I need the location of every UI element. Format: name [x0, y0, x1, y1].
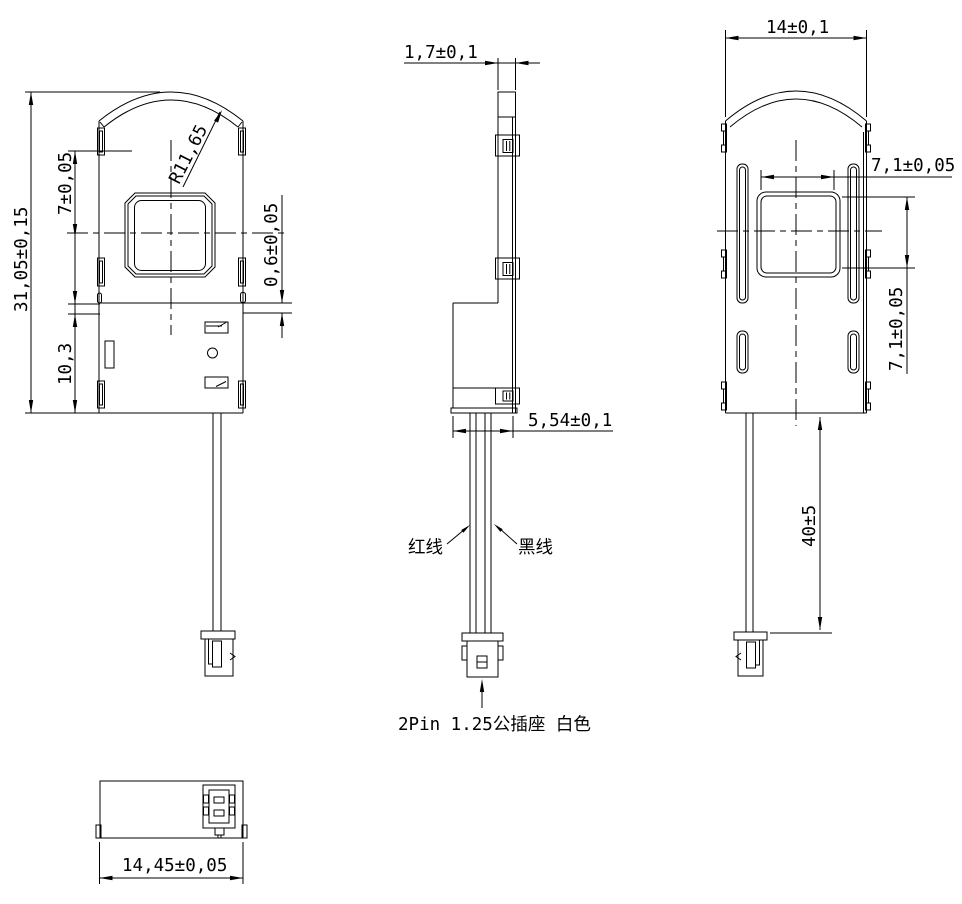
front-wire	[213, 413, 221, 631]
dim-window-height-text: 7,1±0,05	[887, 287, 907, 371]
dim-base-depth-text: 5,54±0,1	[528, 411, 612, 431]
label-connector-text: 2Pin 1.25公插座 白色	[398, 715, 591, 735]
side-connector	[462, 633, 503, 677]
dim-overall-height: 31,05±0,15	[12, 92, 160, 413]
label-black-wire: 黑线	[494, 524, 553, 558]
dim-window-width: 7,1±0,05	[761, 156, 955, 190]
dim-shell-thickness-text: 1,7±0,1	[404, 43, 478, 63]
dim-window-center-text: 7±0,05	[56, 152, 76, 215]
dim-top-radius: R11,65	[166, 110, 222, 187]
dim-shell-thickness: 1,7±0,1	[404, 43, 540, 90]
technical-drawing: 31,05±0,15 7±0,05 10,3 0,6±0,05	[0, 0, 962, 904]
front-view: 31,05±0,15 7±0,05 10,3 0,6±0,05	[12, 92, 292, 676]
dim-overall-width: 14±0,1	[726, 18, 867, 117]
dim-overall-height-text: 31,05±0,15	[12, 207, 32, 312]
side-view: 1,7±0,1 5,54±0,1 红线 黑线 2Pin 1.25公插座 白色	[398, 43, 613, 735]
rear-window	[757, 192, 840, 277]
rear-connector	[734, 632, 767, 676]
side-outline	[451, 92, 517, 413]
rear-centerlines	[717, 140, 882, 426]
drawing-sheet: 31,05±0,15 7±0,05 10,3 0,6±0,05	[0, 0, 962, 904]
rear-slots	[737, 164, 859, 373]
dim-wire-length: 40±5	[770, 417, 832, 633]
dim-bottom-width-text: 14,45±0,05	[122, 856, 227, 876]
dim-overall-width-text: 14±0,1	[766, 18, 829, 38]
dim-lip-step: 0,6±0,05	[262, 195, 284, 338]
dim-bottom-width: 14,45±0,05	[100, 842, 244, 884]
front-connector	[201, 631, 235, 676]
dim-lip-step-text: 0,6±0,05	[262, 203, 282, 287]
bottom-connector	[203, 785, 235, 838]
front-lower-details	[105, 322, 228, 388]
rear-wire	[746, 413, 753, 632]
label-red-wire: 红线	[408, 525, 470, 558]
bottom-view: 14,45±0,05	[96, 781, 247, 884]
dim-top-radius-text: R11,65	[166, 122, 213, 187]
dim-window-width-text: 7,1±0,05	[871, 156, 955, 176]
dim-wire-length-text: 40±5	[800, 505, 820, 547]
label-black-wire-text: 黑线	[518, 538, 553, 558]
front-window	[125, 193, 215, 277]
dim-window-height: 7,1±0,05	[842, 197, 915, 374]
dim-lower-section-text: 10,3	[56, 343, 76, 385]
dim-lower-section: 10,3	[56, 304, 100, 385]
side-wires	[470, 413, 491, 633]
label-connector: 2Pin 1.25公插座 白色	[398, 679, 591, 735]
dim-base-depth: 5,54±0,1	[453, 411, 613, 438]
label-red-wire-text: 红线	[408, 538, 443, 558]
rear-view: 14±0,1 7,1±0,05 7,1±0,05 40±5	[717, 18, 955, 676]
